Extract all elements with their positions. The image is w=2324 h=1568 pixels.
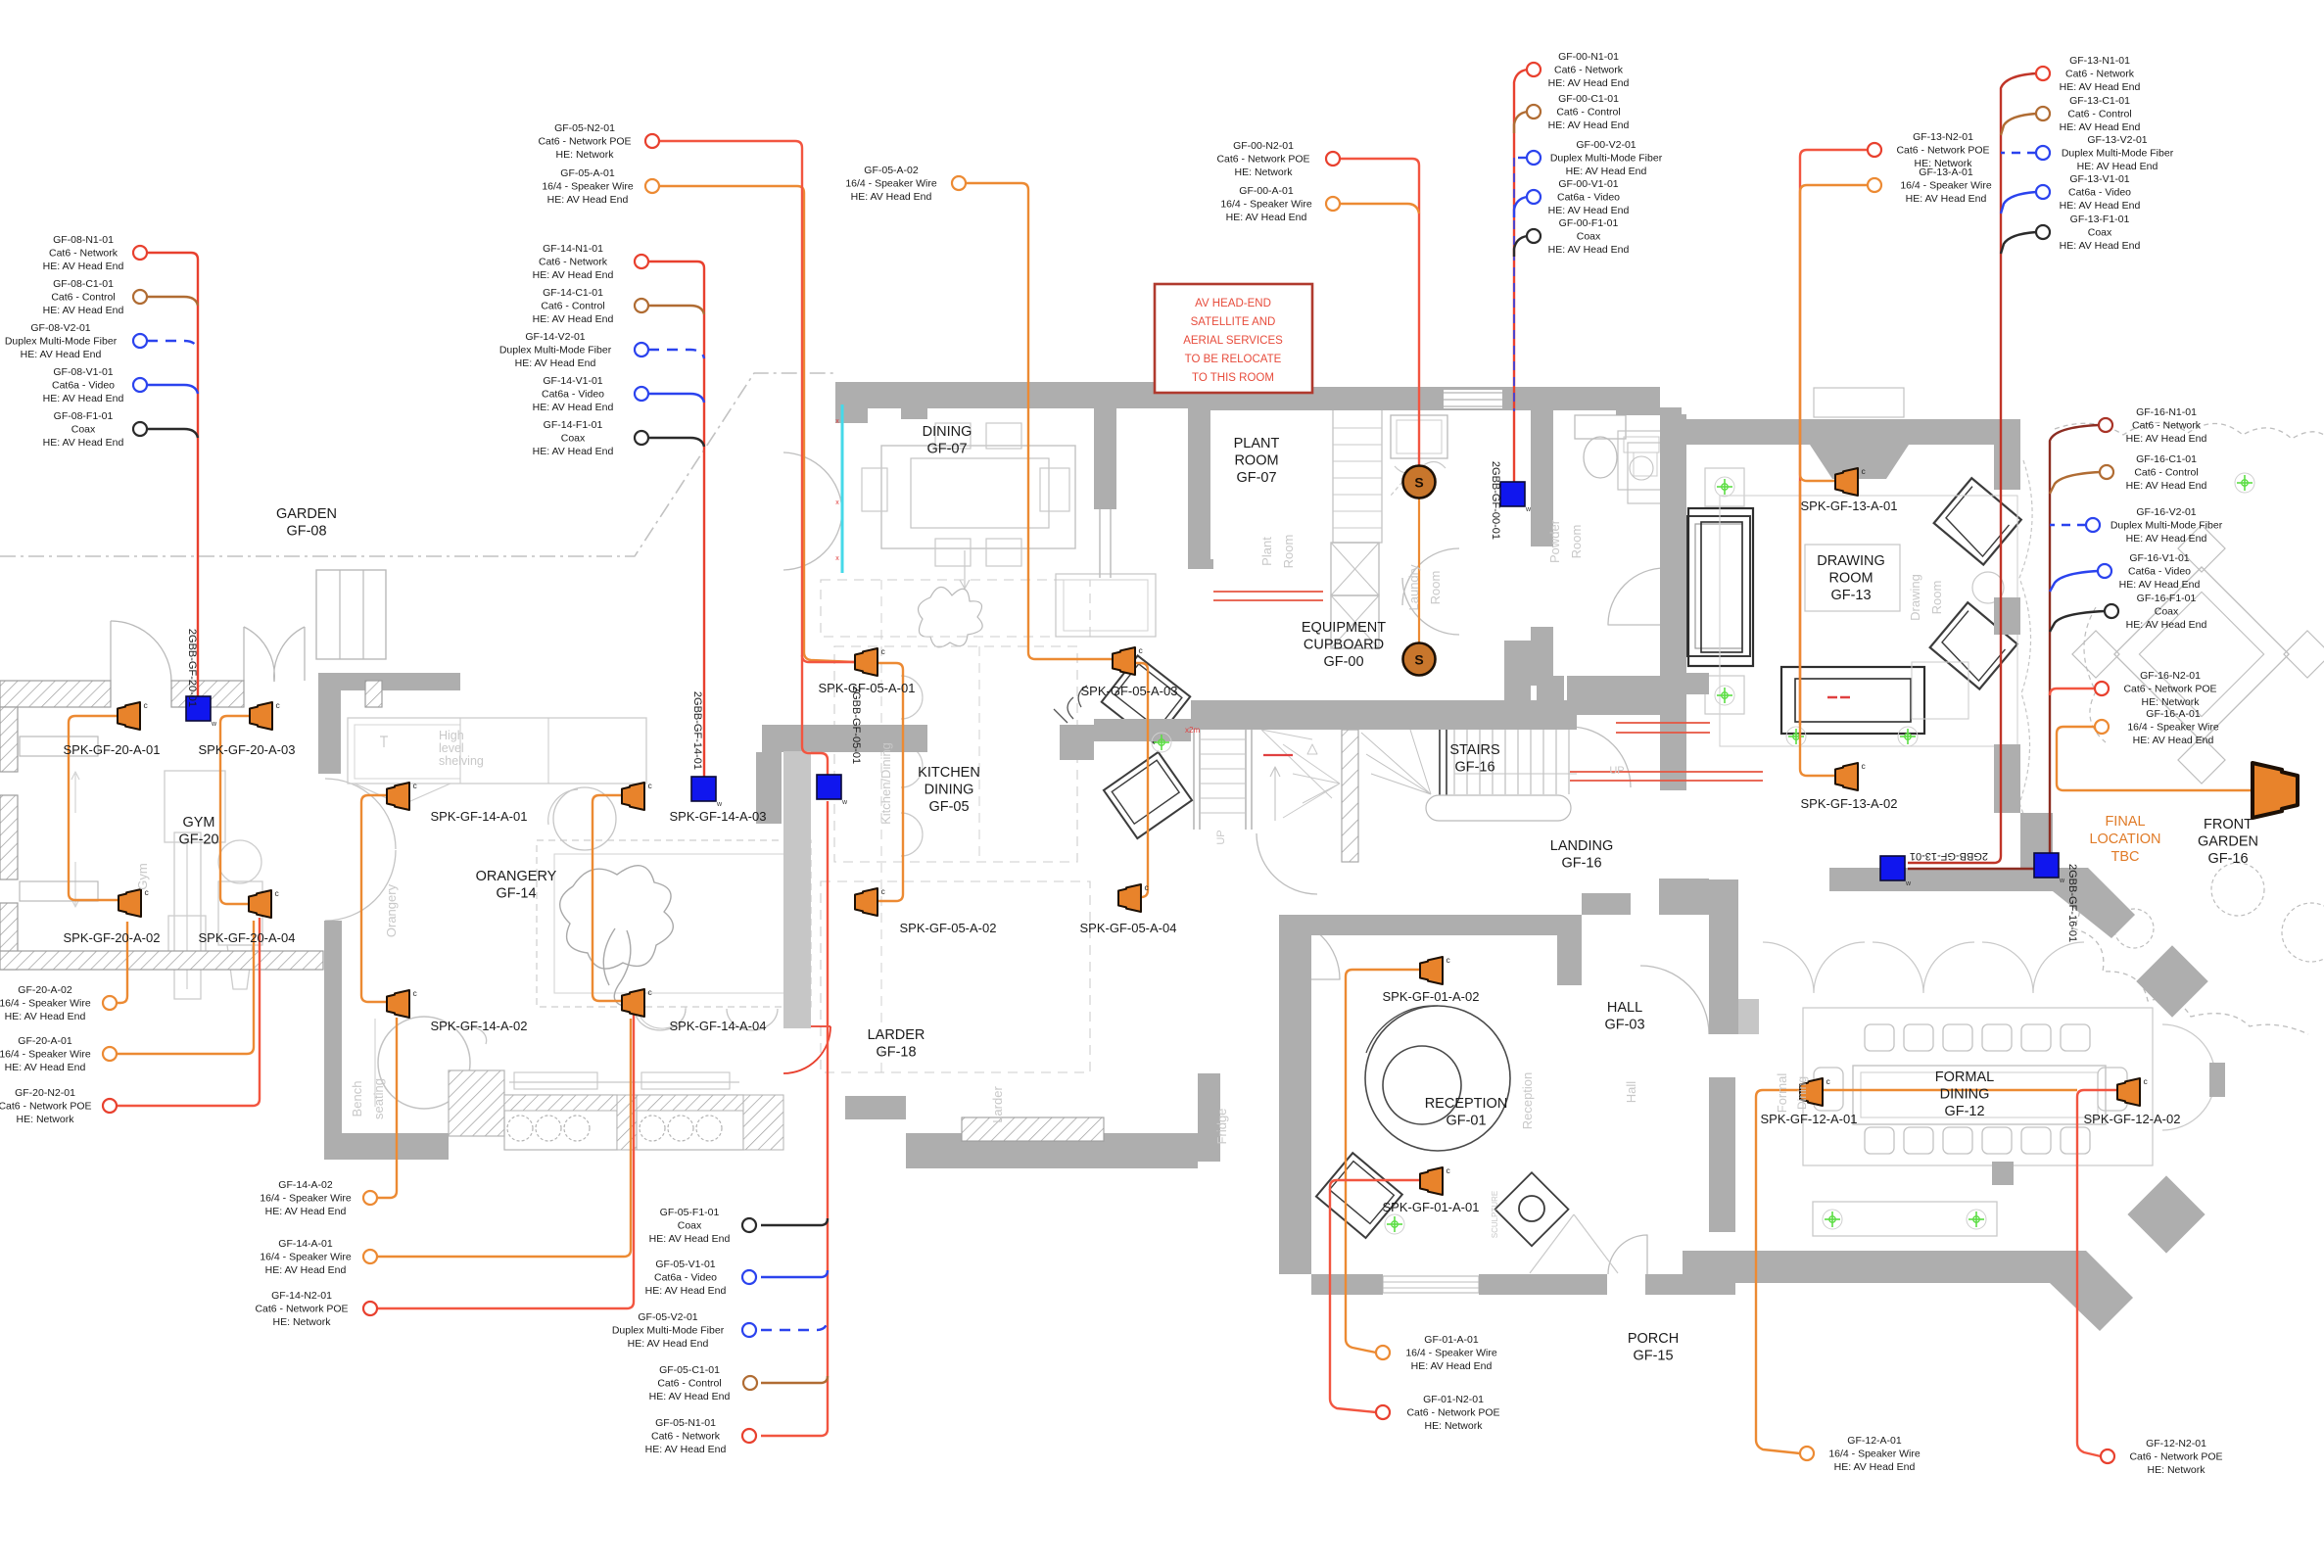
svg-text:GF-14-F1-01: GF-14-F1-01 (544, 419, 603, 431)
svg-text:High: High (439, 729, 464, 742)
svg-text:GYM: GYM (182, 815, 214, 831)
svg-text:SPK-GF-14-A-02: SPK-GF-14-A-02 (431, 1019, 528, 1033)
svg-text:Cat6 - Network: Cat6 - Network (49, 248, 119, 260)
svg-text:Coax: Coax (71, 424, 96, 436)
svg-text:HE: Network: HE: Network (2142, 696, 2201, 708)
svg-text:HE: AV Head End: HE: AV Head End (547, 194, 629, 206)
svg-text:GF-03: GF-03 (1604, 1018, 1644, 1033)
svg-text:Larder: Larder (990, 1086, 1005, 1123)
svg-text:HE: AV Head End: HE: AV Head End (533, 313, 614, 325)
svg-text:FINAL: FINAL (2105, 814, 2145, 830)
svg-text:GF-05: GF-05 (928, 799, 969, 815)
svg-text:GF-20-A-02: GF-20-A-02 (18, 984, 72, 996)
svg-text:HE: AV Head End: HE: AV Head End (1548, 205, 1630, 216)
svg-text:16/4 - Speaker Wire: 16/4 - Speaker Wire (260, 1193, 352, 1205)
svg-text:Duplex Multi-Mode Fiber: Duplex Multi-Mode Fiber (2111, 520, 2223, 532)
svg-text:Gym: Gym (135, 863, 150, 889)
svg-text:GF-13-V1-01: GF-13-V1-01 (2069, 173, 2129, 185)
svg-text:SPK-GF-20-A-01: SPK-GF-20-A-01 (64, 742, 161, 757)
svg-text:HE: AV Head End: HE: AV Head End (2119, 579, 2201, 591)
svg-text:Cat6 - Network: Cat6 - Network (651, 1431, 721, 1443)
svg-text:GF-12-A-01: GF-12-A-01 (1847, 1435, 1902, 1447)
svg-text:AERIAL SERVICES: AERIAL SERVICES (1183, 335, 1283, 347)
svg-text:16/4 - Speaker Wire: 16/4 - Speaker Wire (2127, 722, 2219, 734)
svg-text:GF-12: GF-12 (1944, 1104, 1984, 1119)
svg-text:level: level (439, 741, 464, 755)
svg-text:HE: AV Head End: HE: AV Head End (2126, 619, 2207, 631)
svg-text:EQUIPMENT: EQUIPMENT (1302, 620, 1386, 636)
svg-text:w: w (1525, 506, 1532, 513)
svg-text:GF-12-N2-01: GF-12-N2-01 (2146, 1438, 2206, 1449)
svg-text:HE: AV Head End: HE: AV Head End (2060, 200, 2141, 212)
svg-text:Cat6 - Control: Cat6 - Control (2067, 109, 2131, 120)
svg-text:FRONT: FRONT (2204, 817, 2253, 832)
svg-text:x2m: x2m (1185, 726, 1200, 735)
svg-text:16/4 - Speaker Wire: 16/4 - Speaker Wire (0, 998, 91, 1010)
svg-text:GF-16-F1-01: GF-16-F1-01 (2137, 593, 2197, 604)
svg-text:AV HEAD-END: AV HEAD-END (1195, 298, 1271, 309)
svg-text:GF-05-A-01: GF-05-A-01 (560, 167, 615, 179)
svg-text:GF-05-V1-01: GF-05-V1-01 (655, 1259, 715, 1270)
svg-text:GF-13-C1-01: GF-13-C1-01 (2069, 95, 2130, 107)
svg-text:16/4 - Speaker Wire: 16/4 - Speaker Wire (845, 178, 937, 190)
svg-text:Cat6 - Network POE: Cat6 - Network POE (1896, 145, 1989, 157)
svg-text:GF-14: GF-14 (496, 886, 536, 902)
svg-text:16/4 - Speaker Wire: 16/4 - Speaker Wire (1405, 1348, 1497, 1359)
svg-text:S: S (1414, 475, 1423, 491)
svg-text:GF-05-F1-01: GF-05-F1-01 (660, 1207, 720, 1218)
svg-text:HE: Network: HE: Network (1425, 1420, 1484, 1432)
svg-text:SPK-GF-12-A-01: SPK-GF-12-A-01 (1761, 1112, 1858, 1126)
svg-text:Cat6 - Control: Cat6 - Control (657, 1378, 721, 1390)
svg-text:GF-13-F1-01: GF-13-F1-01 (2070, 214, 2130, 225)
svg-text:GF-16: GF-16 (2207, 851, 2248, 867)
svg-text:seating: seating (371, 1078, 386, 1119)
svg-text:HE: AV Head End: HE: AV Head End (43, 261, 124, 272)
svg-text:HE: AV Head End: HE: AV Head End (1906, 193, 1987, 205)
svg-text:TO BE RELOCATE: TO BE RELOCATE (1185, 354, 1282, 365)
svg-text:TBC: TBC (2111, 849, 2140, 865)
svg-text:GF-00-F1-01: GF-00-F1-01 (1559, 217, 1619, 229)
svg-text:HE: AV Head End: HE: AV Head End (533, 402, 614, 413)
svg-text:16/4 - Speaker Wire: 16/4 - Speaker Wire (1900, 180, 1992, 192)
svg-text:Bench: Bench (350, 1081, 364, 1117)
svg-text:GF-05-N1-01: GF-05-N1-01 (655, 1417, 716, 1429)
svg-text:Room: Room (1281, 535, 1296, 569)
svg-text:2GBB-GF-14-01: 2GBB-GF-14-01 (691, 691, 703, 770)
svg-text:HE: AV Head End: HE: AV Head End (2126, 533, 2207, 545)
svg-text:Laundry: Laundry (1406, 564, 1421, 610)
svg-text:SPK-GF-13-A-01: SPK-GF-13-A-01 (1801, 499, 1898, 513)
svg-text:Coax: Coax (678, 1220, 702, 1232)
svg-text:HE: AV Head End: HE: AV Head End (649, 1233, 731, 1245)
svg-text:GF-00-C1-01: GF-00-C1-01 (1558, 93, 1619, 105)
svg-text:Coax: Coax (2088, 227, 2112, 239)
svg-text:GF-07: GF-07 (1236, 470, 1276, 486)
svg-text:GF-16-C1-01: GF-16-C1-01 (2136, 453, 2197, 465)
svg-text:SPK-GF-05-A-04: SPK-GF-05-A-04 (1080, 921, 1177, 935)
svg-text:Duplex Multi-Mode Fiber: Duplex Multi-Mode Fiber (5, 336, 118, 348)
svg-text:16/4 - Speaker Wire: 16/4 - Speaker Wire (1828, 1449, 1921, 1460)
svg-text:GF-01-N2-01: GF-01-N2-01 (1423, 1394, 1484, 1405)
svg-text:GF-00-A-01: GF-00-A-01 (1239, 185, 1294, 197)
svg-text:Cat6 - Network POE: Cat6 - Network POE (0, 1101, 92, 1113)
svg-text:GF-13-A-01: GF-13-A-01 (1919, 166, 1973, 178)
svg-text:Plant: Plant (1259, 537, 1274, 566)
svg-text:HE: AV Head End: HE: AV Head End (645, 1444, 727, 1455)
svg-text:LOCATION: LOCATION (2089, 832, 2160, 847)
svg-text:ROOM: ROOM (1828, 571, 1873, 587)
svg-text:GF-08-N1-01: GF-08-N1-01 (53, 234, 114, 246)
svg-text:SPK-GF-20-A-02: SPK-GF-20-A-02 (64, 930, 161, 945)
svg-text:HE: AV Head End: HE: AV Head End (1226, 212, 1307, 223)
svg-text:DRAWING: DRAWING (1817, 553, 1885, 569)
svg-text:GARDEN: GARDEN (276, 506, 337, 522)
svg-text:GF-05-C1-01: GF-05-C1-01 (659, 1364, 720, 1376)
svg-text:HE: AV Head End: HE: AV Head End (2060, 121, 2141, 133)
svg-text:GF-14-C1-01: GF-14-C1-01 (543, 287, 603, 299)
svg-text:SPK-GF-05-A-01: SPK-GF-05-A-01 (819, 681, 916, 695)
svg-text:Cat6 - Control: Cat6 - Control (541, 301, 604, 312)
svg-text:S: S (1414, 652, 1423, 668)
svg-text:Coax: Coax (1577, 231, 1601, 243)
svg-text:GF-18: GF-18 (876, 1045, 916, 1061)
svg-text:HE: AV Head End: HE: AV Head End (21, 349, 102, 360)
svg-text:HE: AV Head End: HE: AV Head End (1548, 119, 1630, 131)
svg-text:HE: AV Head End: HE: AV Head End (2060, 240, 2141, 252)
svg-text:w: w (211, 721, 217, 728)
svg-text:CUPBOARD: CUPBOARD (1304, 638, 1384, 653)
svg-text:16/4 - Speaker Wire: 16/4 - Speaker Wire (260, 1252, 352, 1263)
svg-text:GF-16-A-01: GF-16-A-01 (2146, 708, 2201, 720)
svg-text:HE: Network: HE: Network (2148, 1464, 2206, 1476)
svg-text:HE: AV Head End: HE: AV Head End (1548, 77, 1630, 89)
svg-text:HE: AV Head End: HE: AV Head End (1548, 244, 1630, 256)
svg-text:HE: AV Head End: HE: AV Head End (43, 393, 124, 404)
svg-text:HE: AV Head End: HE: AV Head End (1411, 1360, 1493, 1372)
svg-text:HE: AV Head End: HE: AV Head End (1834, 1461, 1916, 1473)
svg-text:GF-16-V2-01: GF-16-V2-01 (2136, 506, 2196, 518)
svg-text:HE: AV Head End: HE: AV Head End (851, 191, 932, 203)
svg-text:Cat6 - Network: Cat6 - Network (2132, 420, 2202, 432)
svg-text:16/4 - Speaker Wire: 16/4 - Speaker Wire (0, 1049, 91, 1061)
svg-text:GF-16-N1-01: GF-16-N1-01 (2136, 406, 2197, 418)
svg-text:Cat6 - Control: Cat6 - Control (51, 292, 115, 304)
svg-text:GF-20-A-01: GF-20-A-01 (18, 1035, 72, 1047)
svg-text:GF-14-V1-01: GF-14-V1-01 (543, 375, 602, 387)
svg-text:UP: UP (1609, 765, 1624, 777)
svg-text:w: w (1905, 880, 1912, 887)
svg-text:Room: Room (1929, 581, 1944, 615)
svg-text:GF-08-V1-01: GF-08-V1-01 (53, 366, 113, 378)
svg-text:GF-08-C1-01: GF-08-C1-01 (53, 278, 114, 290)
svg-text:LANDING: LANDING (1550, 838, 1613, 854)
svg-text:SPK-GF-12-A-02: SPK-GF-12-A-02 (2084, 1112, 2181, 1126)
svg-text:x: x (835, 555, 839, 562)
svg-text:Duplex Multi-Mode Fiber: Duplex Multi-Mode Fiber (1550, 153, 1663, 165)
svg-text:HE: AV Head End: HE: AV Head End (2077, 161, 2158, 172)
svg-text:Formal: Formal (1775, 1073, 1789, 1114)
svg-text:SPK-GF-01-A-01: SPK-GF-01-A-01 (1383, 1200, 1480, 1214)
svg-text:Duplex Multi-Mode Fiber: Duplex Multi-Mode Fiber (499, 345, 612, 356)
svg-text:GF-05-A-02: GF-05-A-02 (864, 165, 919, 176)
svg-text:GF-14-A-01: GF-14-A-01 (278, 1238, 333, 1250)
svg-text:Duplex Multi-Mode Fiber: Duplex Multi-Mode Fiber (2062, 148, 2174, 160)
svg-text:GARDEN: GARDEN (2198, 834, 2258, 850)
svg-text:Cat6 - Network POE: Cat6 - Network POE (538, 136, 631, 148)
svg-text:w: w (841, 799, 848, 806)
svg-text:Cat6 - Network: Cat6 - Network (539, 257, 608, 268)
svg-text:2GBB-GF-20-01: 2GBB-GF-20-01 (186, 629, 198, 707)
svg-text:DINING: DINING (923, 424, 972, 440)
svg-text:Coax: Coax (2155, 606, 2179, 618)
svg-text:HE: AV Head End: HE: AV Head End (1566, 166, 1647, 177)
svg-text:GF-14-A-02: GF-14-A-02 (278, 1179, 333, 1191)
svg-text:Cat6a - Video: Cat6a - Video (542, 389, 604, 401)
svg-text:HE: AV Head End: HE: AV Head End (2133, 735, 2214, 746)
svg-text:HE: AV Head End: HE: AV Head End (2060, 81, 2141, 93)
svg-text:GF-01-A-01: GF-01-A-01 (1424, 1334, 1479, 1346)
svg-text:RECEPTION: RECEPTION (1425, 1096, 1508, 1112)
svg-text:GF-13-N2-01: GF-13-N2-01 (1913, 131, 1973, 143)
svg-text:ORANGERY: ORANGERY (476, 869, 557, 884)
svg-text:HE: AV Head End: HE: AV Head End (515, 357, 596, 369)
svg-text:Cat6 - Network: Cat6 - Network (1554, 65, 1624, 76)
svg-text:HE: AV Head End: HE: AV Head End (265, 1206, 347, 1217)
svg-text:SPK-GF-20-A-04: SPK-GF-20-A-04 (199, 930, 296, 945)
svg-text:SPK-GF-20-A-03: SPK-GF-20-A-03 (199, 742, 296, 757)
svg-text:Cat6a - Video: Cat6a - Video (2128, 566, 2191, 578)
svg-text:LARDER: LARDER (868, 1027, 925, 1043)
svg-text:HALL: HALL (1607, 1000, 1642, 1016)
svg-text:GF-14-N1-01: GF-14-N1-01 (543, 243, 603, 255)
svg-text:GF-07: GF-07 (926, 442, 967, 457)
svg-text:Cat6a - Video: Cat6a - Video (2068, 187, 2131, 199)
svg-text:SCULPTURE: SCULPTURE (1491, 1191, 1499, 1238)
svg-text:SPK-GF-14-A-04: SPK-GF-14-A-04 (670, 1019, 767, 1033)
svg-text:DINING: DINING (1940, 1087, 1990, 1103)
svg-text:HE: AV Head End: HE: AV Head End (533, 269, 614, 281)
svg-text:GF-08: GF-08 (286, 524, 326, 540)
svg-text:16/4 - Speaker Wire: 16/4 - Speaker Wire (542, 181, 634, 193)
svg-text:SPK-GF-14-A-03: SPK-GF-14-A-03 (670, 809, 767, 824)
svg-text:GF-16-V1-01: GF-16-V1-01 (2129, 552, 2189, 564)
svg-text:HE: AV Head End: HE: AV Head End (2126, 480, 2207, 492)
svg-text:HE: AV Head End: HE: AV Head End (265, 1264, 347, 1276)
svg-text:HE: AV Head End: HE: AV Head End (645, 1285, 727, 1297)
svg-text:Room: Room (1428, 571, 1443, 605)
svg-text:KITCHEN: KITCHEN (918, 765, 980, 781)
svg-text:SPK-GF-05-A-02: SPK-GF-05-A-02 (900, 921, 997, 935)
svg-text:GF-14-V2-01: GF-14-V2-01 (525, 331, 585, 343)
svg-text:Cat6 - Network POE: Cat6 - Network POE (2123, 684, 2216, 695)
svg-text:Cat6 - Network POE: Cat6 - Network POE (2129, 1451, 2222, 1463)
svg-text:HE: Network: HE: Network (273, 1316, 332, 1328)
svg-text:HE: AV Head End: HE: AV Head End (43, 305, 124, 316)
svg-text:x: x (835, 418, 839, 425)
svg-text:DINING: DINING (925, 783, 974, 798)
svg-text:SPK-GF-13-A-02: SPK-GF-13-A-02 (1801, 796, 1898, 811)
svg-text:SATELLITE AND: SATELLITE AND (1191, 316, 1276, 328)
svg-text:w: w (716, 801, 723, 808)
svg-text:HE: Network: HE: Network (17, 1114, 75, 1125)
svg-text:Cat6 - Network POE: Cat6 - Network POE (1406, 1407, 1499, 1419)
svg-text:GF-00-N2-01: GF-00-N2-01 (1233, 140, 1294, 152)
svg-text:SPK-GF-01-A-02: SPK-GF-01-A-02 (1383, 989, 1480, 1004)
svg-text:SPK-GF-05-A-03: SPK-GF-05-A-03 (1081, 684, 1178, 698)
svg-text:GF-20: GF-20 (178, 832, 218, 848)
svg-text:Powder: Powder (1547, 519, 1562, 563)
svg-text:Drawing: Drawing (1908, 574, 1922, 621)
svg-text:shelving: shelving (439, 754, 484, 768)
svg-text:GF-00-V2-01: GF-00-V2-01 (1576, 139, 1636, 151)
svg-text:Cat6 - Control: Cat6 - Control (1556, 107, 1620, 119)
svg-text:2GBB-GF-13-01: 2GBB-GF-13-01 (1910, 850, 1988, 862)
svg-text:GF-00: GF-00 (1323, 654, 1363, 670)
svg-text:GF-16: GF-16 (1561, 856, 1601, 872)
svg-text:GF-13-V2-01: GF-13-V2-01 (2087, 134, 2147, 146)
svg-text:Cat6a - Video: Cat6a - Video (654, 1272, 717, 1284)
svg-text:GF-15: GF-15 (1633, 1349, 1673, 1364)
svg-text:HE: AV Head End: HE: AV Head End (533, 446, 614, 457)
svg-text:Dining: Dining (1795, 1076, 1809, 1110)
svg-text:Hall: Hall (1624, 1081, 1638, 1104)
svg-text:HE: AV Head End: HE: AV Head End (5, 1062, 86, 1073)
svg-text:Cat6a - Video: Cat6a - Video (52, 380, 115, 392)
svg-text:Duplex Multi-Mode Fiber: Duplex Multi-Mode Fiber (612, 1325, 725, 1337)
svg-text:Cat6a - Video: Cat6a - Video (1557, 192, 1620, 204)
svg-text:GF-05-N2-01: GF-05-N2-01 (554, 122, 615, 134)
svg-text:HE: AV Head End: HE: AV Head End (5, 1011, 86, 1022)
svg-text:Coax: Coax (561, 433, 586, 445)
svg-text:GF-20-N2-01: GF-20-N2-01 (15, 1087, 75, 1099)
svg-text:Room: Room (1569, 525, 1584, 559)
svg-text:GF-08-V2-01: GF-08-V2-01 (30, 322, 90, 334)
svg-text:Cat6 - Network POE: Cat6 - Network POE (255, 1304, 348, 1315)
svg-text:GF-08-F1-01: GF-08-F1-01 (54, 410, 114, 422)
svg-text:2GBB-GF-16-01: 2GBB-GF-16-01 (2066, 864, 2078, 942)
svg-text:Cat6 - Network POE: Cat6 - Network POE (1216, 154, 1309, 166)
svg-text:GF-01: GF-01 (1446, 1114, 1486, 1129)
svg-text:Cat6 - Control: Cat6 - Control (2134, 467, 2198, 479)
svg-text:Orangery: Orangery (384, 883, 399, 937)
svg-text:HE: AV Head End: HE: AV Head End (649, 1391, 731, 1402)
svg-text:w: w (2059, 878, 2065, 884)
svg-text:GF-05-V2-01: GF-05-V2-01 (638, 1311, 697, 1323)
svg-text:HE: AV Head End: HE: AV Head End (2126, 433, 2207, 445)
svg-text:x: x (835, 499, 839, 506)
svg-text:Reception: Reception (1520, 1072, 1535, 1130)
svg-text:GF-13: GF-13 (1830, 588, 1871, 603)
svg-text:Fridge: Fridge (1214, 1109, 1229, 1145)
svg-text:HE: Network: HE: Network (1235, 166, 1294, 178)
svg-text:2GBB-GF-05-01: 2GBB-GF-05-01 (850, 686, 862, 764)
svg-text:UP: UP (1215, 830, 1227, 844)
svg-text:HE: AV Head End: HE: AV Head End (628, 1338, 709, 1350)
svg-text:PORCH: PORCH (1628, 1331, 1679, 1347)
svg-text:HE: Network: HE: Network (556, 149, 615, 161)
svg-text:GF-16-N2-01: GF-16-N2-01 (2140, 670, 2201, 682)
svg-text:GF-14-N2-01: GF-14-N2-01 (271, 1290, 332, 1302)
svg-text:GF-00-V1-01: GF-00-V1-01 (1558, 178, 1618, 190)
svg-text:SPK-GF-14-A-01: SPK-GF-14-A-01 (431, 809, 528, 824)
svg-text:FORMAL: FORMAL (1935, 1069, 1994, 1085)
svg-text:TO THIS ROOM: TO THIS ROOM (1192, 372, 1274, 384)
svg-text:HE: AV Head End: HE: AV Head End (43, 437, 124, 449)
svg-text:ROOM: ROOM (1234, 453, 1278, 469)
svg-text:2GBB-GF-00-01: 2GBB-GF-00-01 (1490, 461, 1501, 540)
svg-text:STAIRS: STAIRS (1449, 742, 1499, 758)
svg-text:PLANT: PLANT (1234, 436, 1280, 451)
svg-text:GF-16: GF-16 (1454, 760, 1494, 776)
svg-text:GF-00-N1-01: GF-00-N1-01 (1558, 51, 1619, 63)
svg-text:16/4 - Speaker Wire: 16/4 - Speaker Wire (1220, 199, 1312, 211)
svg-text:GF-13-N1-01: GF-13-N1-01 (2069, 55, 2130, 67)
svg-text:Cat6 - Network: Cat6 - Network (2065, 69, 2135, 80)
svg-text:Kitchen/Dining: Kitchen/Dining (878, 742, 893, 825)
